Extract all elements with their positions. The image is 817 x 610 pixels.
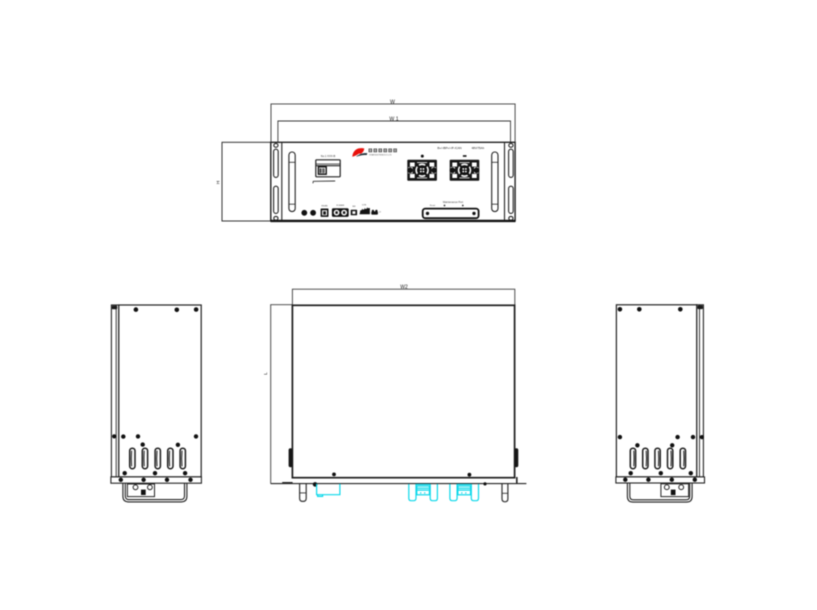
- svg-text:Reset: Reset: [430, 204, 436, 207]
- svg-text:W: W: [390, 99, 395, 105]
- svg-text:No.1 XXX-B: No.1 XXX-B: [321, 154, 336, 158]
- svg-text:48V/75Ah: 48V/75Ah: [472, 146, 485, 150]
- svg-text:RS485: RS485: [321, 205, 328, 207]
- svg-text:CON: CON: [362, 205, 367, 207]
- svg-text:SW: SW: [352, 206, 355, 208]
- svg-text:L: L: [263, 372, 269, 375]
- svg-text:W 1: W 1: [389, 116, 398, 122]
- svg-text:x2: x2: [379, 212, 381, 214]
- svg-text:KSTAR ELECTRONICS CO.,LTD: KSTAR ELECTRONICS CO.,LTD: [369, 154, 392, 157]
- svg-text:B+/-/BP+/-/P-/CAN: B+/-/BP+/-/P-/CAN: [438, 146, 462, 150]
- svg-text:H: H: [216, 181, 221, 184]
- svg-text:Maintenance Port: Maintenance Port: [443, 200, 464, 204]
- svg-text:POWER: POWER: [336, 205, 344, 207]
- svg-text:W2: W2: [400, 285, 408, 291]
